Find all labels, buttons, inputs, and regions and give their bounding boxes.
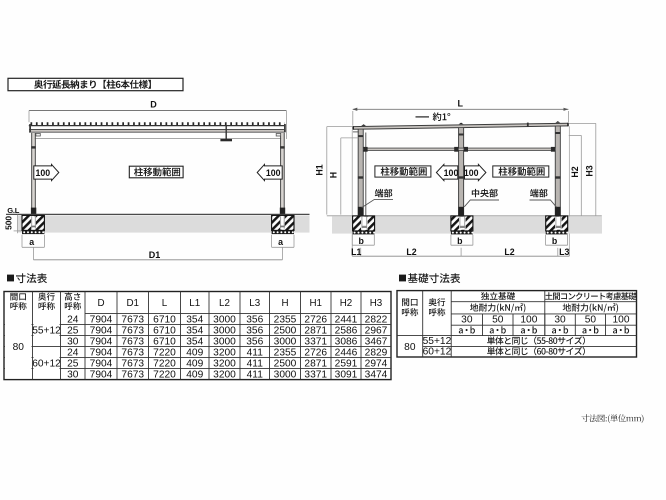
svg-text:100: 100 [464, 168, 479, 178]
svg-text:L: L [162, 298, 168, 309]
svg-text:H3: H3 [370, 298, 383, 309]
svg-text:L3: L3 [249, 298, 260, 309]
svg-text:30: 30 [67, 370, 79, 381]
svg-text:356: 356 [246, 337, 263, 348]
svg-text:25: 25 [67, 359, 79, 370]
svg-text:D1: D1 [149, 250, 161, 260]
svg-text:L1: L1 [189, 298, 200, 309]
svg-text:2586: 2586 [335, 326, 358, 337]
svg-text:7673: 7673 [121, 337, 144, 348]
svg-text:3467: 3467 [365, 337, 388, 348]
svg-text:b: b [359, 236, 365, 246]
svg-text:3000: 3000 [213, 315, 236, 326]
svg-text:b: b [552, 236, 558, 246]
svg-text:L2: L2 [406, 247, 416, 257]
svg-text:3000: 3000 [274, 337, 297, 348]
svg-text:H1: H1 [315, 164, 325, 175]
svg-text:2974: 2974 [365, 359, 388, 370]
svg-text:7673: 7673 [121, 348, 144, 359]
svg-text:7673: 7673 [121, 370, 144, 381]
svg-text:7904: 7904 [90, 337, 113, 348]
svg-text:100: 100 [520, 314, 537, 325]
svg-text:G.L: G.L [7, 206, 20, 215]
svg-text:b: b [457, 236, 463, 246]
svg-text:3371: 3371 [304, 337, 327, 348]
svg-text:80: 80 [404, 342, 416, 353]
svg-text:3371: 3371 [304, 370, 327, 381]
svg-text:H: H [281, 298, 288, 309]
svg-text:3200: 3200 [213, 348, 236, 359]
svg-text:354: 354 [186, 315, 203, 326]
svg-text:3000: 3000 [274, 370, 297, 381]
svg-text:100: 100 [266, 168, 281, 178]
svg-text:2441: 2441 [335, 315, 358, 326]
svg-text:100: 100 [35, 168, 50, 178]
svg-text:L2: L2 [219, 298, 230, 309]
svg-text:7904: 7904 [90, 370, 113, 381]
svg-text:7220: 7220 [153, 348, 176, 359]
svg-text:411: 411 [247, 370, 264, 381]
svg-text:6710: 6710 [153, 326, 176, 337]
svg-text:L: L [457, 99, 463, 109]
svg-text:D: D [97, 298, 104, 309]
svg-text:D: D [150, 100, 157, 110]
svg-text:H3: H3 [585, 165, 595, 176]
svg-text:80: 80 [13, 342, 25, 353]
svg-text:30: 30 [554, 314, 566, 325]
svg-text:2446: 2446 [335, 348, 358, 359]
svg-text:2871: 2871 [304, 359, 327, 370]
svg-text:411: 411 [247, 348, 264, 359]
svg-text:50: 50 [492, 314, 504, 325]
svg-text:7904: 7904 [90, 348, 113, 359]
svg-text:D1: D1 [126, 298, 139, 309]
svg-text:3200: 3200 [213, 359, 236, 370]
svg-text:356: 356 [246, 326, 263, 337]
svg-text:30: 30 [67, 337, 79, 348]
svg-text:7220: 7220 [153, 359, 176, 370]
svg-text:411: 411 [247, 359, 264, 370]
svg-text:7904: 7904 [90, 359, 113, 370]
svg-text:409: 409 [186, 370, 203, 381]
svg-text:3086: 3086 [335, 337, 358, 348]
svg-text:H: H [329, 172, 339, 178]
svg-text:2726: 2726 [304, 348, 327, 359]
svg-text:30: 30 [461, 314, 473, 325]
svg-text:6710: 6710 [153, 337, 176, 348]
svg-text:7673: 7673 [121, 326, 144, 337]
svg-text:409: 409 [186, 359, 203, 370]
svg-text:50: 50 [585, 314, 597, 325]
svg-text:356: 356 [246, 315, 263, 326]
svg-text:100: 100 [613, 314, 630, 325]
svg-text:354: 354 [186, 337, 203, 348]
svg-text:500: 500 [4, 216, 14, 230]
svg-text:L3: L3 [559, 247, 569, 257]
svg-text:3474: 3474 [365, 370, 388, 381]
svg-text:2967: 2967 [365, 326, 388, 337]
svg-text:2355: 2355 [274, 315, 297, 326]
svg-text:409: 409 [186, 348, 203, 359]
svg-text:2500: 2500 [274, 359, 297, 370]
svg-text:24: 24 [67, 348, 79, 359]
svg-text:2829: 2829 [365, 348, 388, 359]
svg-text:7904: 7904 [90, 315, 113, 326]
svg-text:a: a [278, 237, 283, 247]
svg-text:a: a [29, 237, 34, 247]
svg-text:2822: 2822 [365, 315, 388, 326]
svg-text:H2: H2 [570, 166, 580, 177]
svg-text:L1: L1 [351, 247, 361, 257]
svg-text:7220: 7220 [153, 370, 176, 381]
svg-text:H1: H1 [309, 298, 322, 309]
svg-text:7904: 7904 [90, 326, 113, 337]
svg-text:3000: 3000 [213, 337, 236, 348]
svg-text:3091: 3091 [335, 370, 358, 381]
svg-text:7673: 7673 [121, 315, 144, 326]
svg-text:3000: 3000 [213, 326, 236, 337]
svg-text:6710: 6710 [153, 315, 176, 326]
svg-text:60+12: 60+12 [423, 347, 452, 358]
svg-text:2871: 2871 [304, 326, 327, 337]
svg-text:H2: H2 [340, 298, 353, 309]
svg-text:354: 354 [186, 326, 203, 337]
svg-text:2500: 2500 [274, 326, 297, 337]
svg-text:55+12: 55+12 [423, 336, 452, 347]
svg-text:24: 24 [67, 315, 79, 326]
svg-text:100: 100 [444, 168, 459, 178]
svg-text:2355: 2355 [274, 348, 297, 359]
svg-text:60+12: 60+12 [32, 359, 61, 370]
svg-text:L2: L2 [504, 247, 514, 257]
svg-text:55+12: 55+12 [32, 326, 61, 337]
svg-text:25: 25 [67, 326, 79, 337]
svg-text:2726: 2726 [304, 315, 327, 326]
svg-text:2591: 2591 [335, 359, 358, 370]
svg-text:7673: 7673 [121, 359, 144, 370]
svg-text:3200: 3200 [213, 370, 236, 381]
